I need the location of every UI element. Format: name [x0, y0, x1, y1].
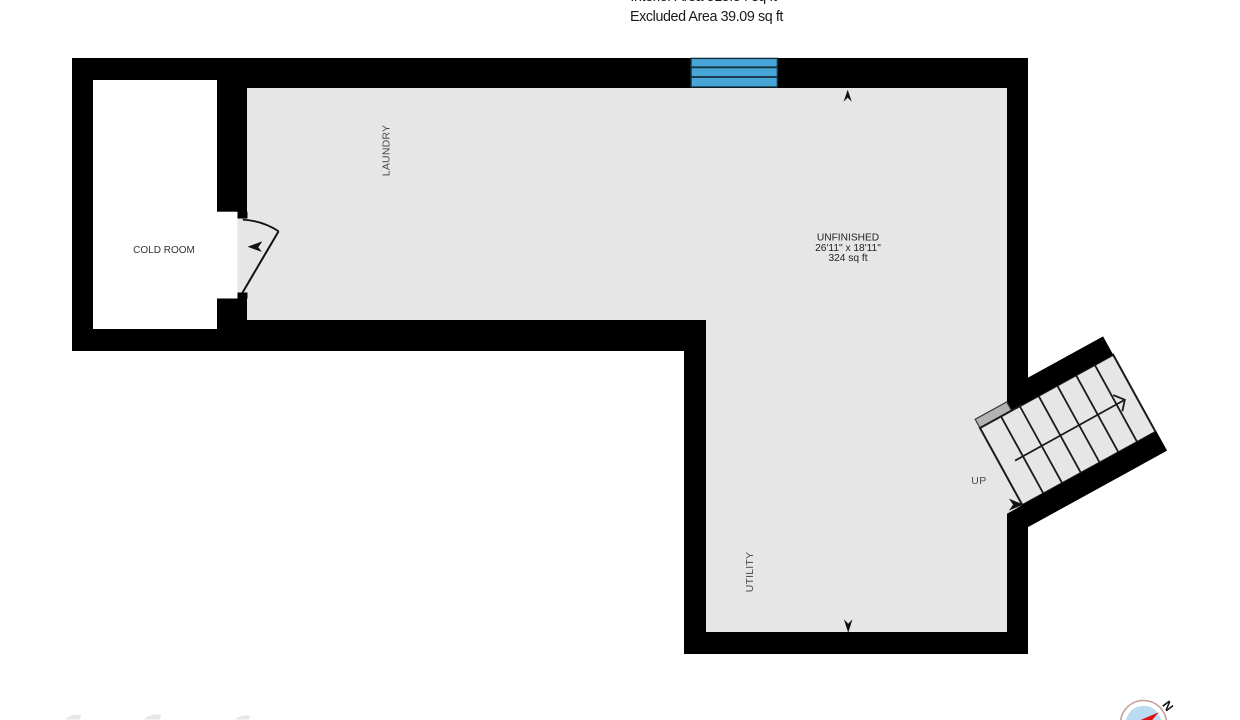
svg-text:UP: UP [971, 475, 986, 487]
svg-text:UTILITY: UTILITY [744, 552, 756, 593]
svg-text:Excluded Area 39.09 sq ft: Excluded Area 39.09 sq ft [630, 9, 783, 25]
svg-text:LAUNDRY: LAUNDRY [380, 125, 392, 176]
svg-text:COLD ROOM: COLD ROOM [133, 245, 195, 256]
svg-text:324 sq ft: 324 sq ft [828, 253, 867, 264]
svg-text:Interior Area 515.54 sq ft: Interior Area 515.54 sq ft [630, 0, 777, 5]
